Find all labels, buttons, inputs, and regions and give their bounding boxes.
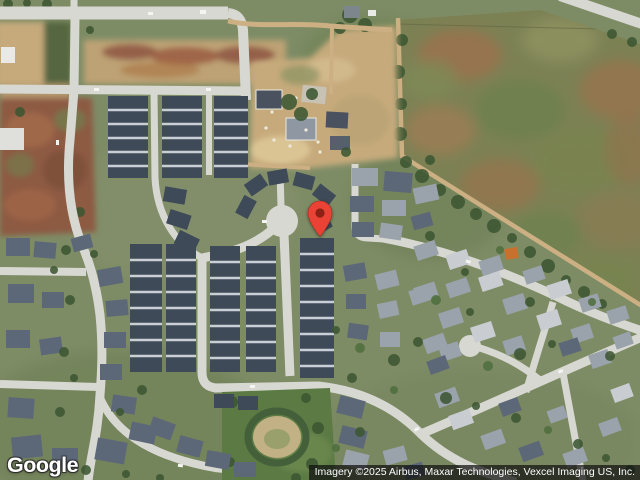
map-viewport[interactable]: Google Imagery ©2025 Airbus, Maxar Techn… xyxy=(0,0,640,480)
map-pin-icon[interactable] xyxy=(307,200,333,238)
attribution-text: Imagery ©2025 Airbus, Maxar Technologies… xyxy=(315,466,635,478)
playground xyxy=(504,247,519,260)
attribution-bar: Imagery ©2025 Airbus, Maxar Technologies… xyxy=(309,465,640,480)
satellite-imagery xyxy=(0,0,640,480)
google-logo[interactable]: Google xyxy=(7,453,78,478)
